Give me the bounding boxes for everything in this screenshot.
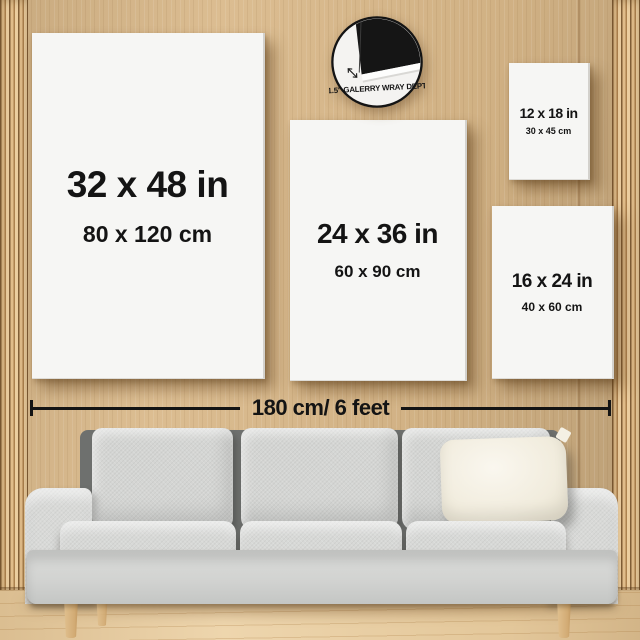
canvas-size-inches: 12 x 18 in: [519, 106, 577, 120]
canvas-size-cm: 80 x 120 cm: [83, 223, 212, 246]
canvas-24x36: 24 x 36 in 60 x 90 cm: [290, 120, 467, 381]
sofa-back-cushion-middle: [241, 428, 398, 530]
canvas-size-cm: 40 x 60 cm: [522, 301, 583, 313]
sofa-back-cushion-left: [92, 428, 233, 530]
canvas-size-inches: 24 x 36 in: [317, 220, 438, 248]
measurement-label: 180 cm/ 6 feet: [240, 395, 401, 421]
canvas-size-cm: 60 x 90 cm: [334, 263, 420, 280]
width-measurement: 180 cm/ 6 feet: [30, 396, 611, 420]
measure-line-left: [33, 407, 240, 410]
canvas-size-inches: 32 x 48 in: [67, 166, 229, 203]
canvas-32x48: 32 x 48 in 80 x 120 cm: [32, 33, 265, 379]
wall-trim-left: [0, 0, 28, 596]
canvas-12x18: 12 x 18 in 30 x 45 cm: [509, 63, 590, 180]
sofa-base: [27, 550, 617, 604]
canvas-size-cm: 30 x 45 cm: [526, 127, 572, 136]
canvas-16x24: 16 x 24 in 40 x 60 cm: [492, 206, 614, 379]
measure-line-right: [401, 407, 608, 410]
throw-pillow: [440, 436, 569, 524]
canvas-size-chart: 32 x 48 in 80 x 120 cm 24 x 36 in 60 x 9…: [0, 0, 640, 640]
gallery-wrap-badge: 1.5" GALERRY WRAY DEPT: [329, 14, 425, 110]
canvas-size-inches: 16 x 24 in: [512, 272, 593, 291]
measure-tick-right: [608, 400, 611, 416]
